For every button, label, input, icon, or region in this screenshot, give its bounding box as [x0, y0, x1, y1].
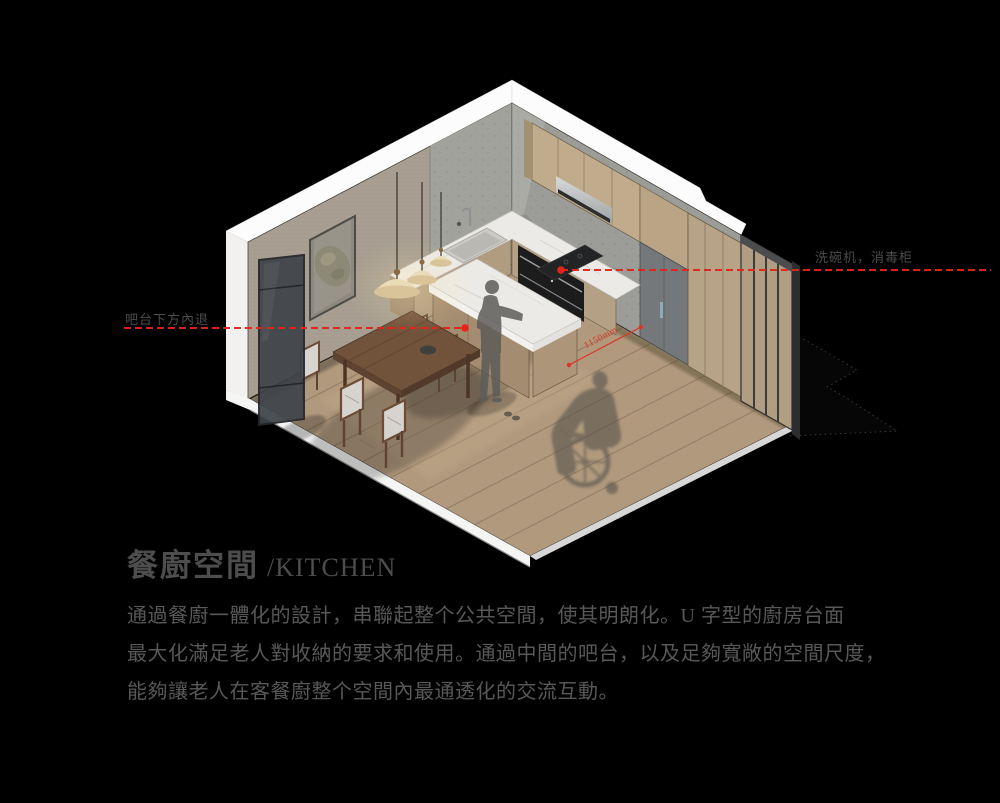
sliding-door-edge — [792, 261, 800, 440]
description-line: 通過餐廚一體化的設計，串聯起整个公共空間，使其明朗化。U 字型的廚房台面 — [127, 597, 917, 635]
annotation-dot-left — [461, 324, 469, 332]
annotation-dot-right — [557, 266, 565, 274]
door-handle — [660, 302, 663, 318]
description-paragraph: 通過餐廚一體化的設計，串聯起整个公共空間，使其明朗化。U 字型的廚房台面 最大化… — [127, 597, 917, 711]
tall-cabinet — [688, 213, 741, 397]
description-line: 能夠讓老人在客餐廚整个空間內最通透化的交流互動。 — [127, 673, 917, 711]
page-title-chinese: 餐廚空間 — [127, 548, 259, 583]
annotation-label-dishwasher: 洗碗机，消毒柜 — [815, 247, 913, 266]
description-line: 最大化滿足老人對收納的要求和使用。通過中間的吧台，以及足夠寬敞的空間尺度， — [127, 635, 917, 673]
page-title: 餐廚空間/KITCHEN — [127, 540, 396, 585]
left-wall-cut-edge — [226, 231, 248, 399]
presentation-page: 1150mm 吧台下方內退 洗碗机，消毒柜 餐廚空間/KITCHEN 通過餐廚一… — [0, 0, 1000, 803]
table-bowl — [420, 346, 436, 355]
annotation-label-bar-recess: 吧台下方內退 — [125, 309, 209, 328]
page-title-english: /KITCHEN — [267, 553, 396, 582]
